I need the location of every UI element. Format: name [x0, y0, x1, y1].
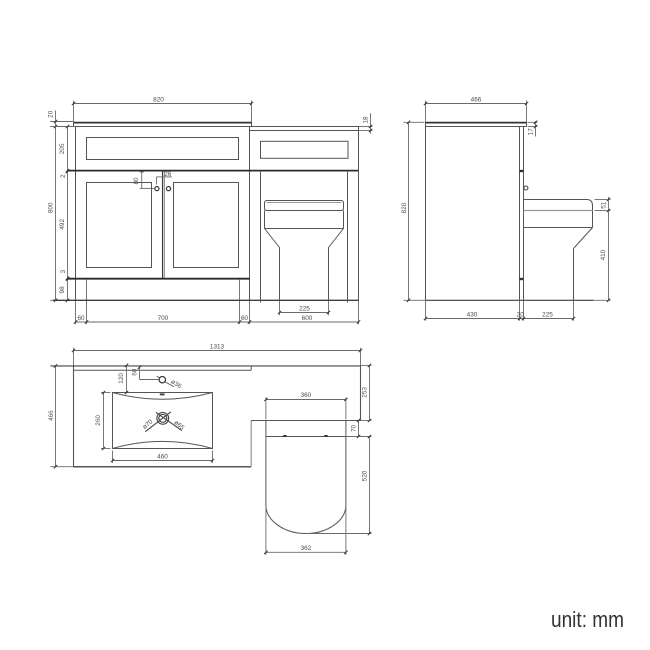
svg-text:80: 80 — [133, 177, 140, 185]
svg-text:225: 225 — [542, 311, 553, 318]
svg-text:225: 225 — [299, 305, 310, 312]
svg-text:466: 466 — [48, 410, 55, 421]
svg-text:unit: mm: unit: mm — [551, 607, 624, 632]
svg-text:51: 51 — [600, 201, 607, 209]
svg-text:98: 98 — [59, 286, 66, 294]
svg-text:600: 600 — [302, 315, 313, 322]
svg-text:18: 18 — [363, 116, 370, 124]
svg-text:17: 17 — [527, 128, 534, 136]
svg-text:430: 430 — [467, 311, 478, 318]
svg-text:26: 26 — [164, 171, 172, 178]
svg-text:800: 800 — [48, 202, 55, 213]
svg-text:410: 410 — [600, 249, 607, 260]
svg-text:60: 60 — [77, 315, 85, 322]
svg-text:3: 3 — [60, 269, 67, 273]
svg-text:260: 260 — [95, 415, 102, 426]
svg-text:820: 820 — [401, 202, 408, 213]
svg-text:360: 360 — [301, 392, 312, 399]
svg-text:60: 60 — [241, 315, 249, 322]
svg-text:70: 70 — [350, 425, 357, 433]
svg-text:1313: 1313 — [210, 344, 225, 351]
svg-text:460: 460 — [157, 453, 168, 460]
svg-text:492: 492 — [59, 219, 66, 230]
svg-text:700: 700 — [158, 315, 169, 322]
svg-text:120: 120 — [118, 373, 125, 384]
svg-text:205: 205 — [59, 143, 66, 154]
svg-text:20: 20 — [517, 311, 525, 318]
svg-text:2: 2 — [60, 174, 67, 178]
svg-text:20: 20 — [48, 110, 55, 118]
svg-text:253: 253 — [361, 387, 368, 398]
svg-text:60: 60 — [131, 368, 138, 376]
svg-text:820: 820 — [153, 97, 164, 104]
svg-text:520: 520 — [361, 470, 368, 481]
svg-text:466: 466 — [471, 97, 482, 104]
svg-text:362: 362 — [301, 545, 312, 552]
